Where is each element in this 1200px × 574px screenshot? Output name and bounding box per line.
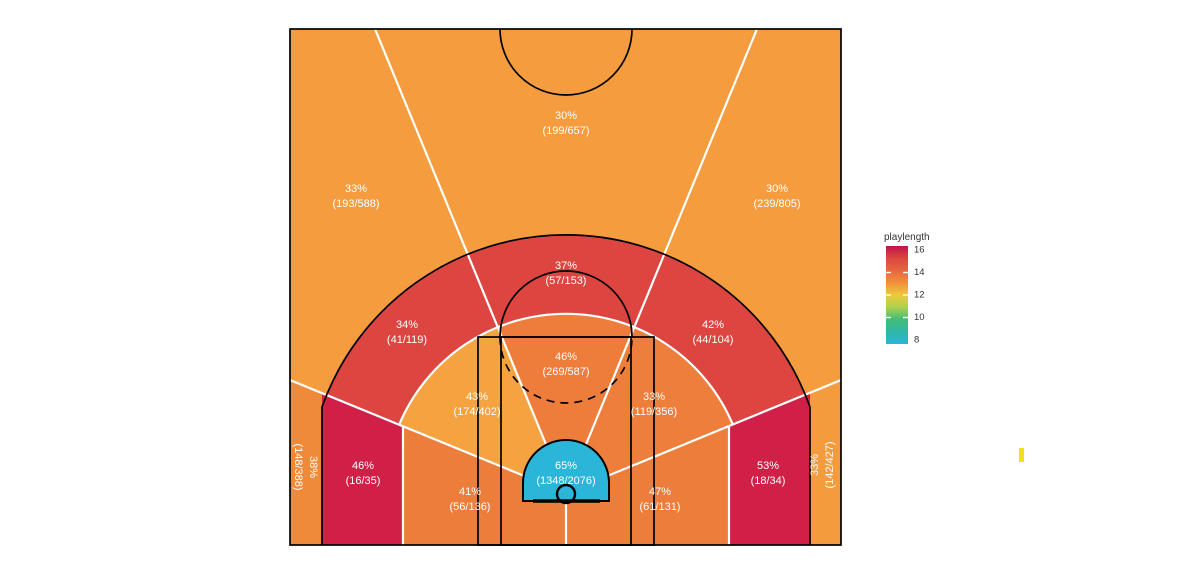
zone-label-pct: 46% (555, 351, 577, 363)
zone-label-frac: (148/388) (292, 443, 304, 490)
legend-tick-label: 12 (914, 290, 925, 301)
figure-canvas: 33% (193/588) 30% (199/657) 30% (239/805… (0, 0, 1200, 574)
zone-label-frac: (199/657) (542, 125, 589, 137)
zone-label-frac: (56/136) (450, 501, 491, 513)
legend-title: playlength (884, 232, 930, 243)
zone-label-pct: 30% (766, 183, 788, 195)
zone-label-pct: 37% (555, 260, 577, 272)
zone-label-frac: (44/104) (693, 334, 734, 346)
zone-label-frac: (119/356) (631, 406, 677, 418)
stray-yellow-mark (1019, 448, 1024, 462)
zone-label-frac: (57/153) (546, 275, 587, 287)
zone-label-frac: (16/35) (346, 475, 381, 487)
zone-label-frac: (142/427) (824, 441, 836, 488)
zone-label-frac: (269/587) (542, 366, 589, 378)
zone-label-pct: 65% (555, 460, 577, 472)
zone-label-frac: (61/131) (640, 501, 681, 513)
zone-label-pct: 33% (345, 183, 367, 195)
zone-label-frac: (193/588) (332, 198, 379, 210)
zone-label-frac: (1348/2076) (536, 475, 595, 487)
zone-label-frac: (239/805) (753, 198, 800, 210)
zone-label-pct: 38% (307, 456, 319, 478)
zone-label-pct: 46% (352, 460, 374, 472)
zone-label-frac: (174/402) (453, 406, 500, 418)
zone-label-pct: 41% (459, 486, 481, 498)
legend-tick-label: 8 (914, 335, 919, 346)
zone-label-frac: (18/34) (751, 475, 786, 487)
zone-label-pct: 43% (466, 391, 488, 403)
legend-tick-label: 14 (914, 267, 925, 278)
zone-label-pct: 53% (757, 460, 779, 472)
legend-tick-label: 16 (914, 245, 925, 256)
zone-label-frac: (41/119) (387, 334, 427, 346)
zone-label-pct: 33% (643, 391, 665, 403)
zone-label-pct: 33% (809, 454, 821, 476)
zone-label-pct: 34% (396, 319, 418, 331)
shot-chart-svg: 33% (193/588) 30% (199/657) 30% (239/805… (0, 0, 1200, 574)
legend-tick-label: 10 (914, 312, 925, 323)
zone-label-pct: 30% (555, 110, 577, 122)
zone-label-pct: 47% (649, 486, 671, 498)
legend: playlength 16 14 12 10 8 (884, 232, 930, 346)
zone-label-pct: 42% (702, 319, 724, 331)
